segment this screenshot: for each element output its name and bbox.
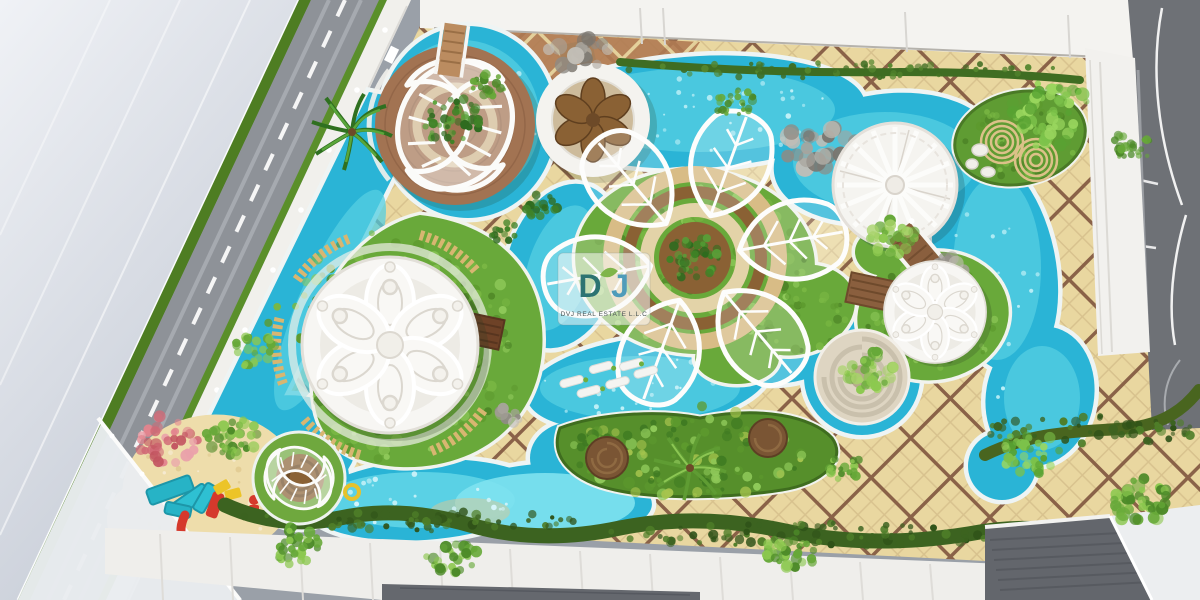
watermark-logo-d: D [578,268,601,304]
spiral-planter-east [749,419,787,457]
aerial-render: D J DVJ REAL ESTATE L.L.C [0,0,1200,600]
leaf-spiral-play-pavilion [253,432,345,524]
timber-bridge-north [436,22,469,77]
watermark-company-name: DVJ REAL ESTATE L.L.C [561,311,648,318]
aerial-render-stage: D J DVJ REAL ESTATE L.L.C [0,0,1200,600]
spiral-planter-west [586,437,628,479]
watermark: D J DVJ REAL ESTATE L.L.C [558,253,650,325]
